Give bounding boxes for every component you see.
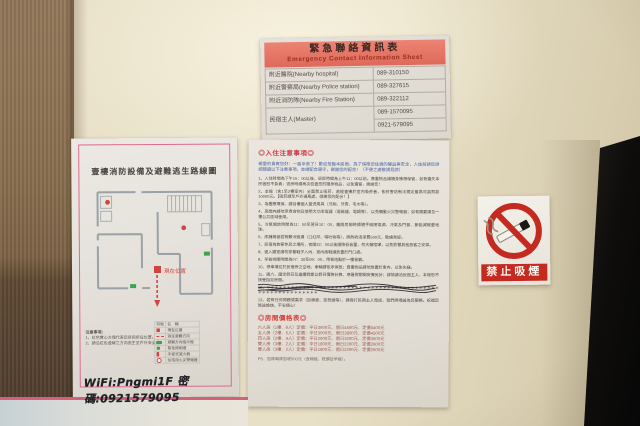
notice-item: 6、床鋪棉被若有髒污毀損（口紅印、嘔吐物等），將酌收清潔費500元，敬請見諒。 [258, 235, 439, 241]
contact-phone: 089-1570095 [374, 105, 446, 119]
evacuation-map-sheet: 壹樓消防設備及避難逃生路線圖 現在位置 注意事項 [71, 137, 239, 397]
brown-curtain [0, 0, 74, 426]
notice-item: 7、民宿為旅客休息之場所，夜間22：00以後請降低音量，勿大聲喧嘩，以免影響其他… [258, 242, 439, 248]
notice-item: 8、進入寢室請勿穿著鞋子入內，室內拖鞋請放置於門口處。 [258, 250, 439, 256]
notice-item: 13、若有任何問題或需求（加棉被、加枕頭等），請撥打民宿主人電話，我們將竭誠為您… [258, 298, 439, 309]
no-smoking-label: 禁止吸煙 [486, 267, 542, 279]
emergency-contact-sheet: 緊急聯絡資訊表 Emergency Contact Information Sh… [260, 35, 451, 141]
notice-item: 10、停車場位於民宿旁之空地，車輛請依序停放；貴重物品請勿放置於車內，以免失竊。 [258, 265, 439, 271]
notice-item: 1、入住時間為下午15：00以後，退房時間為上午11：00以前。貴重物品請隨身攜… [258, 176, 439, 187]
fire-extinguisher-icon [157, 352, 160, 357]
floor-plan-drawing: 現在位置 [83, 182, 226, 311]
emergency-contact-table: 附近醫院(Nearby hospital) 089-310150 附近警察局(N… [265, 65, 447, 134]
map-legend: 符號 名 稱 現在位置 逃生避難方向 避難方向指示燈 [154, 321, 226, 374]
no-smoking-band: 禁止吸煙 [481, 264, 547, 282]
checkin-notice-sheet: ◎入住注意事項◎ 親愛的貴賓您好：一路辛苦了！歡迎蒞臨本民宿，為了保障您住宿的權… [248, 140, 450, 408]
current-position-label: 現在位置 [164, 267, 187, 275]
escape-route-icon [156, 336, 164, 337]
no-smoking-icon [484, 200, 545, 263]
price-line: 雙人房（3樓．2人）定價：平日1800元．假日2200元．定價2600元 [258, 347, 439, 353]
emergency-title-en: Emergency Contact Information Sheet [264, 53, 445, 64]
evacuation-map-title: 壹樓消防設備及避難逃生路線圖 [71, 165, 237, 177]
price-list-title: ◎房間價格表◎ [258, 313, 439, 323]
notice-item-scribbled: 12、＊＊＊＊＊＊＊＊＊＊＊＊＊＊＊＊＊＊＊＊＊＊＊＊＊＊＊＊＊＊＊＊＊＊＊＊＊… [258, 285, 439, 296]
notice-item: 4、房間內請勿烹煮食物及使用大功率電器（電磁爐、電鍋等），以免觸動火災警報器；如… [258, 209, 439, 220]
exit-light-icon [157, 341, 163, 344]
price-ps-line: PS．加床每床加收500元（含棉被、枕頭及早餐）。 [258, 356, 439, 362]
notice-item: 3、為響應環保，請自備個人盥洗用具（牙刷、牙膏、毛巾等）。 [258, 202, 439, 208]
notice-item: 9、早餐供應時間為07：30至09：00，用餐地點於一樓餐廳。 [258, 257, 439, 263]
contact-phone: 089-327615 [373, 79, 445, 93]
legend-row: 住宅用火災警報器 [155, 357, 200, 363]
emergency-sheet-header: 緊急聯絡資訊表 Emergency Contact Information Sh… [264, 39, 445, 67]
contact-label: 民宿主人(Master) [266, 106, 374, 134]
no-smoking-sign: 禁止吸煙 [478, 196, 551, 286]
contact-phone: 089-310150 [373, 66, 445, 80]
fire-alarm-icon [157, 358, 162, 363]
notice-item: 5、冷氣開放時間為11：00至翌日10：00，離開房間時請隨手關閉電源、冷氣及門… [258, 222, 439, 233]
contact-phone: 0921-579095 [374, 118, 446, 132]
current-position-icon [156, 328, 160, 332]
pen-scribble [258, 282, 437, 293]
notice-item: 2、本館（含1至2樓室內）全面禁止吸菸，若經查獲於室內吸菸者，依菸害防制法規定最… [258, 189, 439, 200]
photo-wall-scene: 緊急聯絡資訊表 Emergency Contact Information Sh… [0, 0, 640, 426]
notice-intro: 親愛的貴賓您好：一路辛苦了！歡迎蒞臨本民宿，為了保障您住宿的權益與安全，入住前請… [258, 161, 439, 173]
wifi-handwritten-note: WiFi:Pngmi1F 密碼:0921579095 [84, 371, 255, 407]
emergency-lamp-icon [157, 346, 161, 350]
legend-name: 住宅用火災警報器 [166, 357, 200, 363]
contact-phone: 089-322112 [374, 92, 446, 106]
notice-title: ◎入住注意事項◎ [258, 148, 439, 158]
